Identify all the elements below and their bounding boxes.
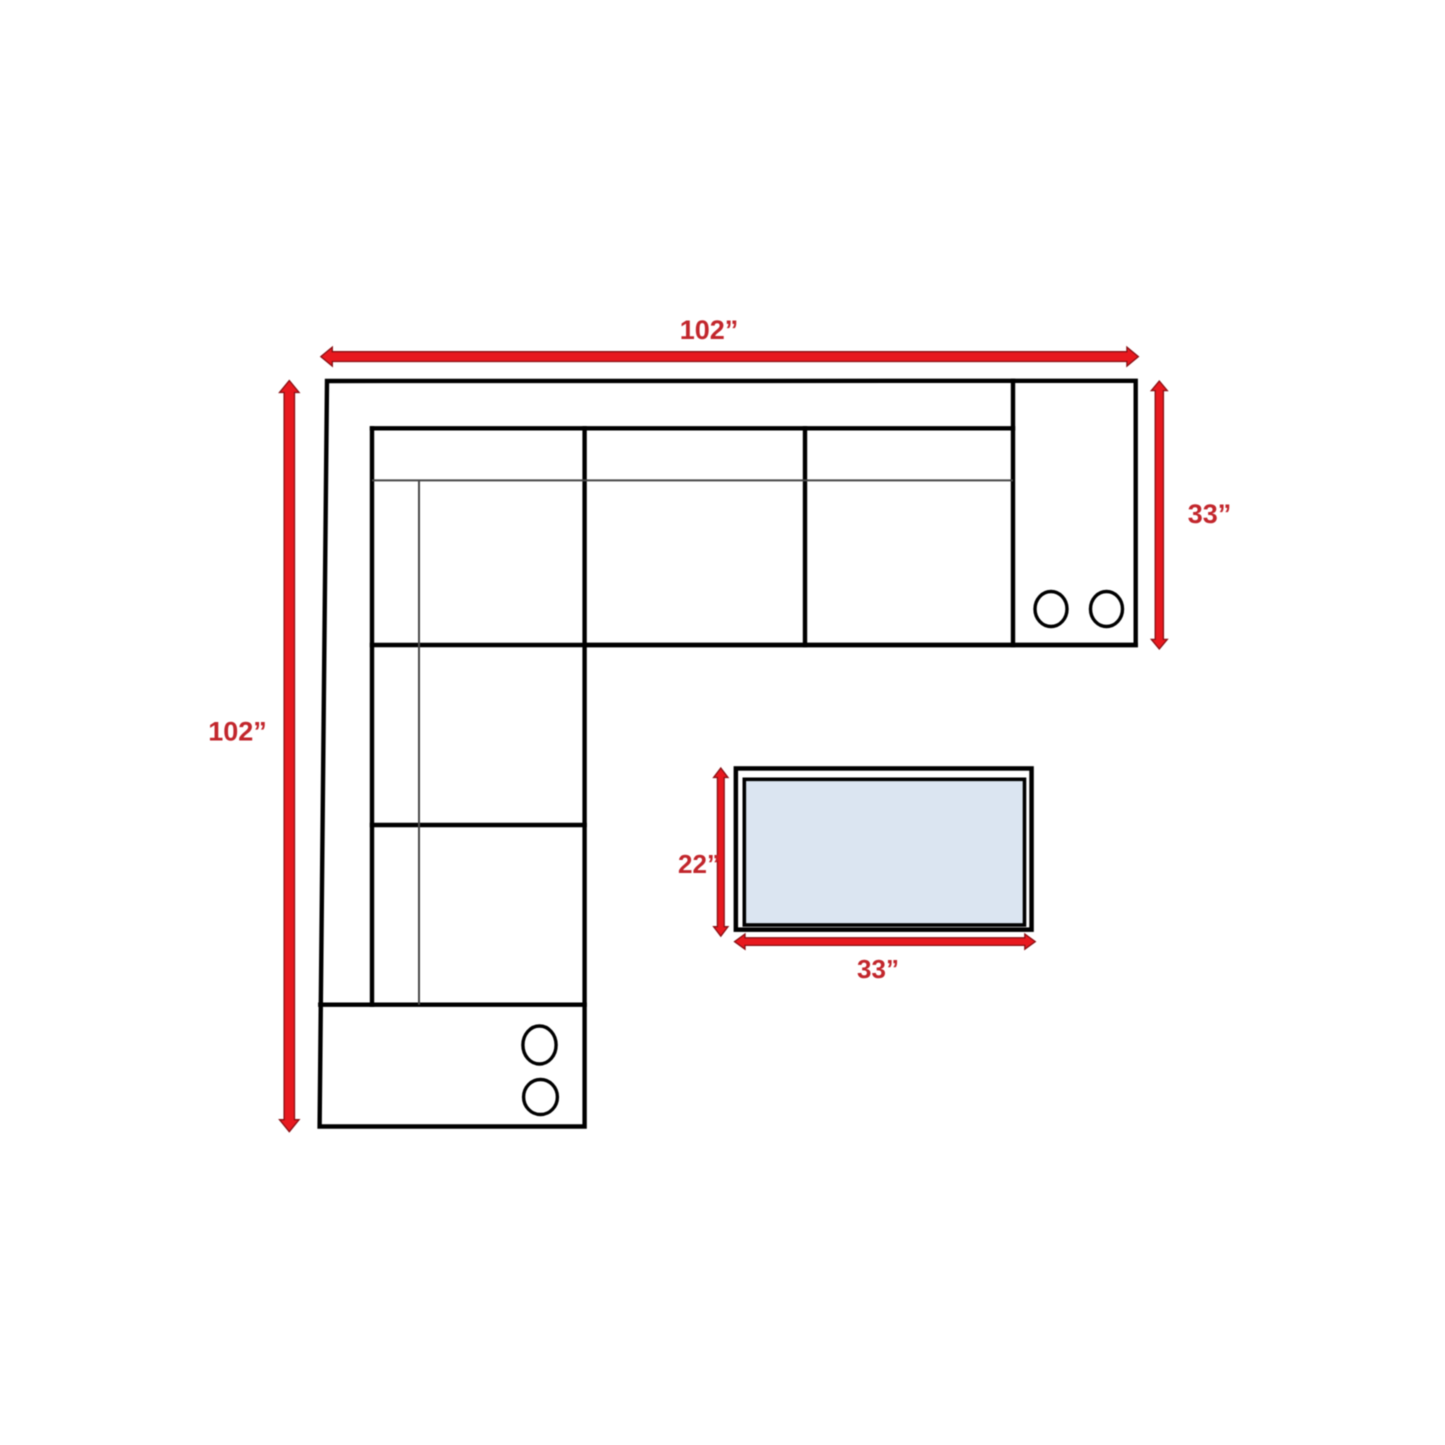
svg-text:33”: 33” <box>1188 499 1232 529</box>
svg-text:22”: 22” <box>678 849 720 879</box>
svg-text:102”: 102” <box>680 315 739 345</box>
svg-text:33”: 33” <box>857 954 899 984</box>
svg-text:102”: 102” <box>208 717 267 747</box>
